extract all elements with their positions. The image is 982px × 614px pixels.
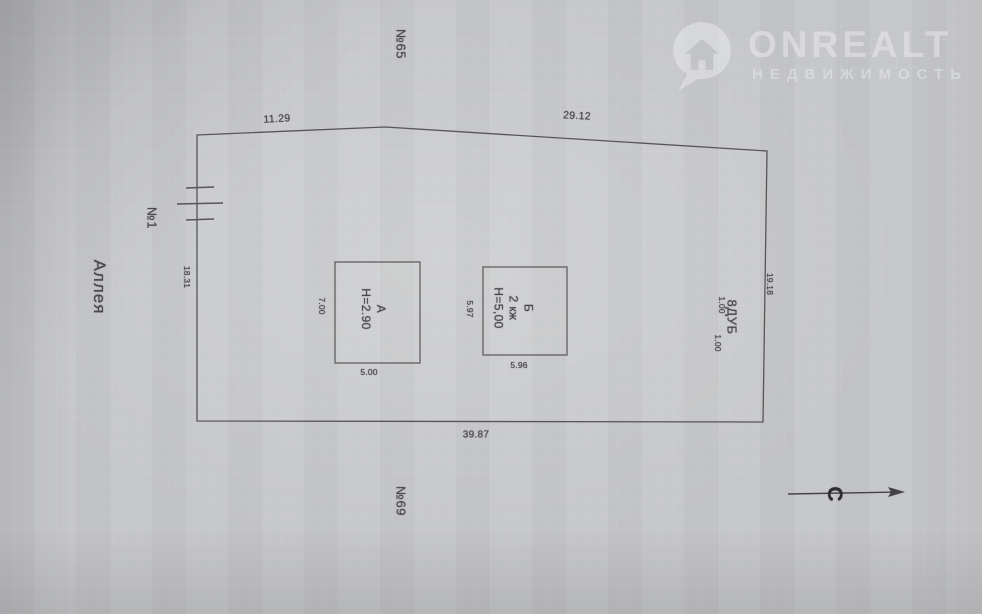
tree-offset-bottom: 1.00	[713, 334, 723, 351]
gate-tick	[177, 203, 223, 204]
adjacent-plot-bottom-label: №69	[394, 486, 409, 516]
building-b-label: Б 2 кж Н=5,00	[491, 287, 536, 328]
parcel-boundary	[197, 127, 767, 422]
dim-bottom: 39.87	[463, 430, 490, 441]
gate-tick	[186, 187, 214, 188]
building-a-label: А Н=2.90	[358, 288, 388, 329]
building-a-bottom-dim: 5.00	[360, 367, 377, 377]
adjacent-plot-left-label: №1	[145, 207, 160, 229]
building-a-height: Н=2.90	[358, 288, 373, 329]
dim-right: 19.18	[765, 273, 775, 295]
building-a-side-dim: 7.00	[317, 297, 327, 314]
dim-top-left: 11.29	[263, 112, 291, 125]
building-b-bottom-dim: 5.96	[510, 360, 527, 370]
building-b-letter: Б	[521, 287, 536, 328]
gate-tick	[186, 219, 214, 220]
building-b-storeys: 2 кж	[506, 287, 521, 328]
scanned-site-plan-page: №65 №1 Аллея №69 11.29 29.12 18.31 19.18…	[0, 0, 982, 614]
oak-tree-label: 8ДУБ	[725, 300, 740, 335]
building-a-letter: А	[373, 288, 388, 329]
dim-left: 18.31	[182, 266, 192, 288]
street-label: Аллея	[89, 260, 109, 315]
building-b-height: Н=5,00	[491, 287, 506, 328]
building-b-side-dim: 5.97	[465, 300, 475, 317]
dim-top-right: 29.12	[563, 109, 591, 122]
compass-north-label: С	[822, 486, 846, 501]
adjacent-plot-top-label: №65	[394, 29, 409, 59]
